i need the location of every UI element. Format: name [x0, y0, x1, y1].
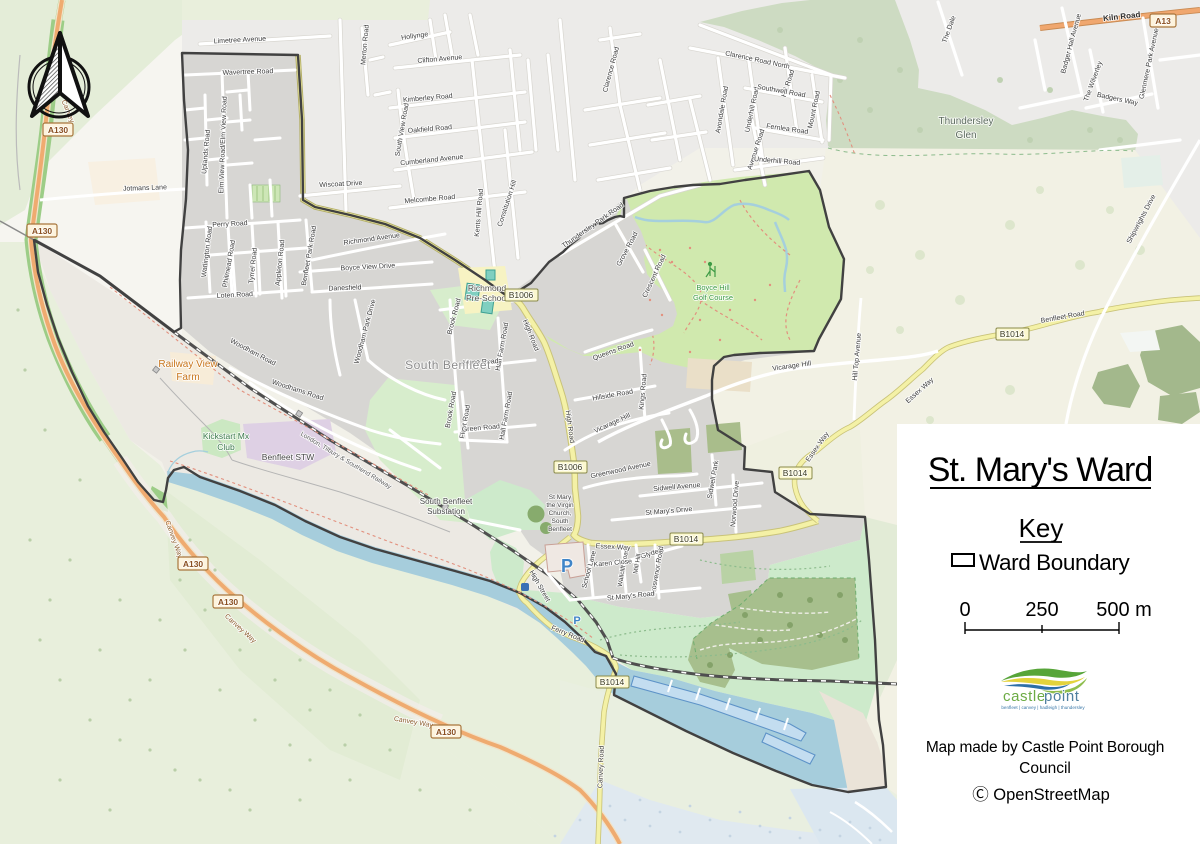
svg-text:Map made by Castle Point Borou: Map made by Castle Point Borough	[926, 739, 1164, 756]
svg-text:castle: castle	[1003, 688, 1046, 705]
svg-text:benfleet | canvey | hadleigh |: benfleet | canvey | hadleigh | thundersl…	[1001, 705, 1085, 710]
svg-text:0: 0	[959, 599, 970, 621]
svg-text:B1014: B1014	[783, 468, 808, 478]
svg-text:St. Mary's Ward: St. Mary's Ward	[928, 451, 1152, 489]
svg-text:Key: Key	[1019, 513, 1064, 543]
svg-text:the Virgin: the Virgin	[546, 502, 574, 509]
svg-text:Boyce Hill: Boyce Hill	[696, 283, 730, 292]
svg-text:A130: A130	[183, 559, 204, 569]
svg-text:P: P	[561, 556, 573, 576]
svg-text:South Benfleet: South Benfleet	[405, 358, 491, 372]
svg-text:Ward Boundary: Ward Boundary	[979, 550, 1130, 575]
svg-text:B1006: B1006	[558, 462, 583, 472]
svg-text:A13: A13	[1155, 16, 1171, 26]
svg-text:Benfleet: Benfleet	[548, 526, 572, 533]
svg-text:A130: A130	[436, 727, 457, 737]
svg-text:South Benfleet: South Benfleet	[420, 497, 473, 506]
svg-text:Thundersley: Thundersley	[938, 116, 993, 127]
svg-text:Richmond: Richmond	[468, 283, 507, 293]
svg-text:B1006: B1006	[509, 290, 534, 300]
svg-text:A130: A130	[32, 226, 53, 236]
svg-text:Danesfield: Danesfield	[328, 284, 361, 292]
svg-text:Golf Course: Golf Course	[693, 293, 733, 302]
svg-text:Pre-School: Pre-School	[466, 293, 508, 303]
svg-text:A130: A130	[48, 125, 69, 135]
svg-text:A130: A130	[218, 597, 239, 607]
svg-text:Kickstart Mx: Kickstart Mx	[203, 431, 250, 441]
svg-text:Substation: Substation	[427, 507, 465, 516]
svg-text:Benfleet STW: Benfleet STW	[262, 452, 314, 462]
svg-text:P: P	[573, 615, 580, 627]
svg-text:South: South	[552, 518, 569, 525]
svg-text:B1014: B1014	[674, 534, 699, 544]
svg-text:point: point	[1044, 688, 1080, 705]
svg-text:Railway View: Railway View	[158, 359, 218, 370]
svg-text:Ⓒ OpenStreetMap: Ⓒ OpenStreetMap	[972, 785, 1110, 804]
svg-text:250: 250	[1025, 599, 1058, 621]
svg-text:Canvey Road: Canvey Road	[597, 746, 605, 789]
svg-text:B1014: B1014	[600, 677, 625, 687]
svg-text:Council: Council	[1019, 760, 1071, 777]
svg-text:B1014: B1014	[1000, 329, 1025, 339]
svg-text:Club: Club	[217, 442, 235, 452]
svg-text:St Mary: St Mary	[549, 494, 572, 501]
svg-text:500 m: 500 m	[1096, 599, 1152, 621]
svg-text:Church,: Church,	[549, 510, 572, 517]
svg-text:Farm: Farm	[176, 372, 199, 383]
svg-text:Glen: Glen	[955, 130, 976, 141]
